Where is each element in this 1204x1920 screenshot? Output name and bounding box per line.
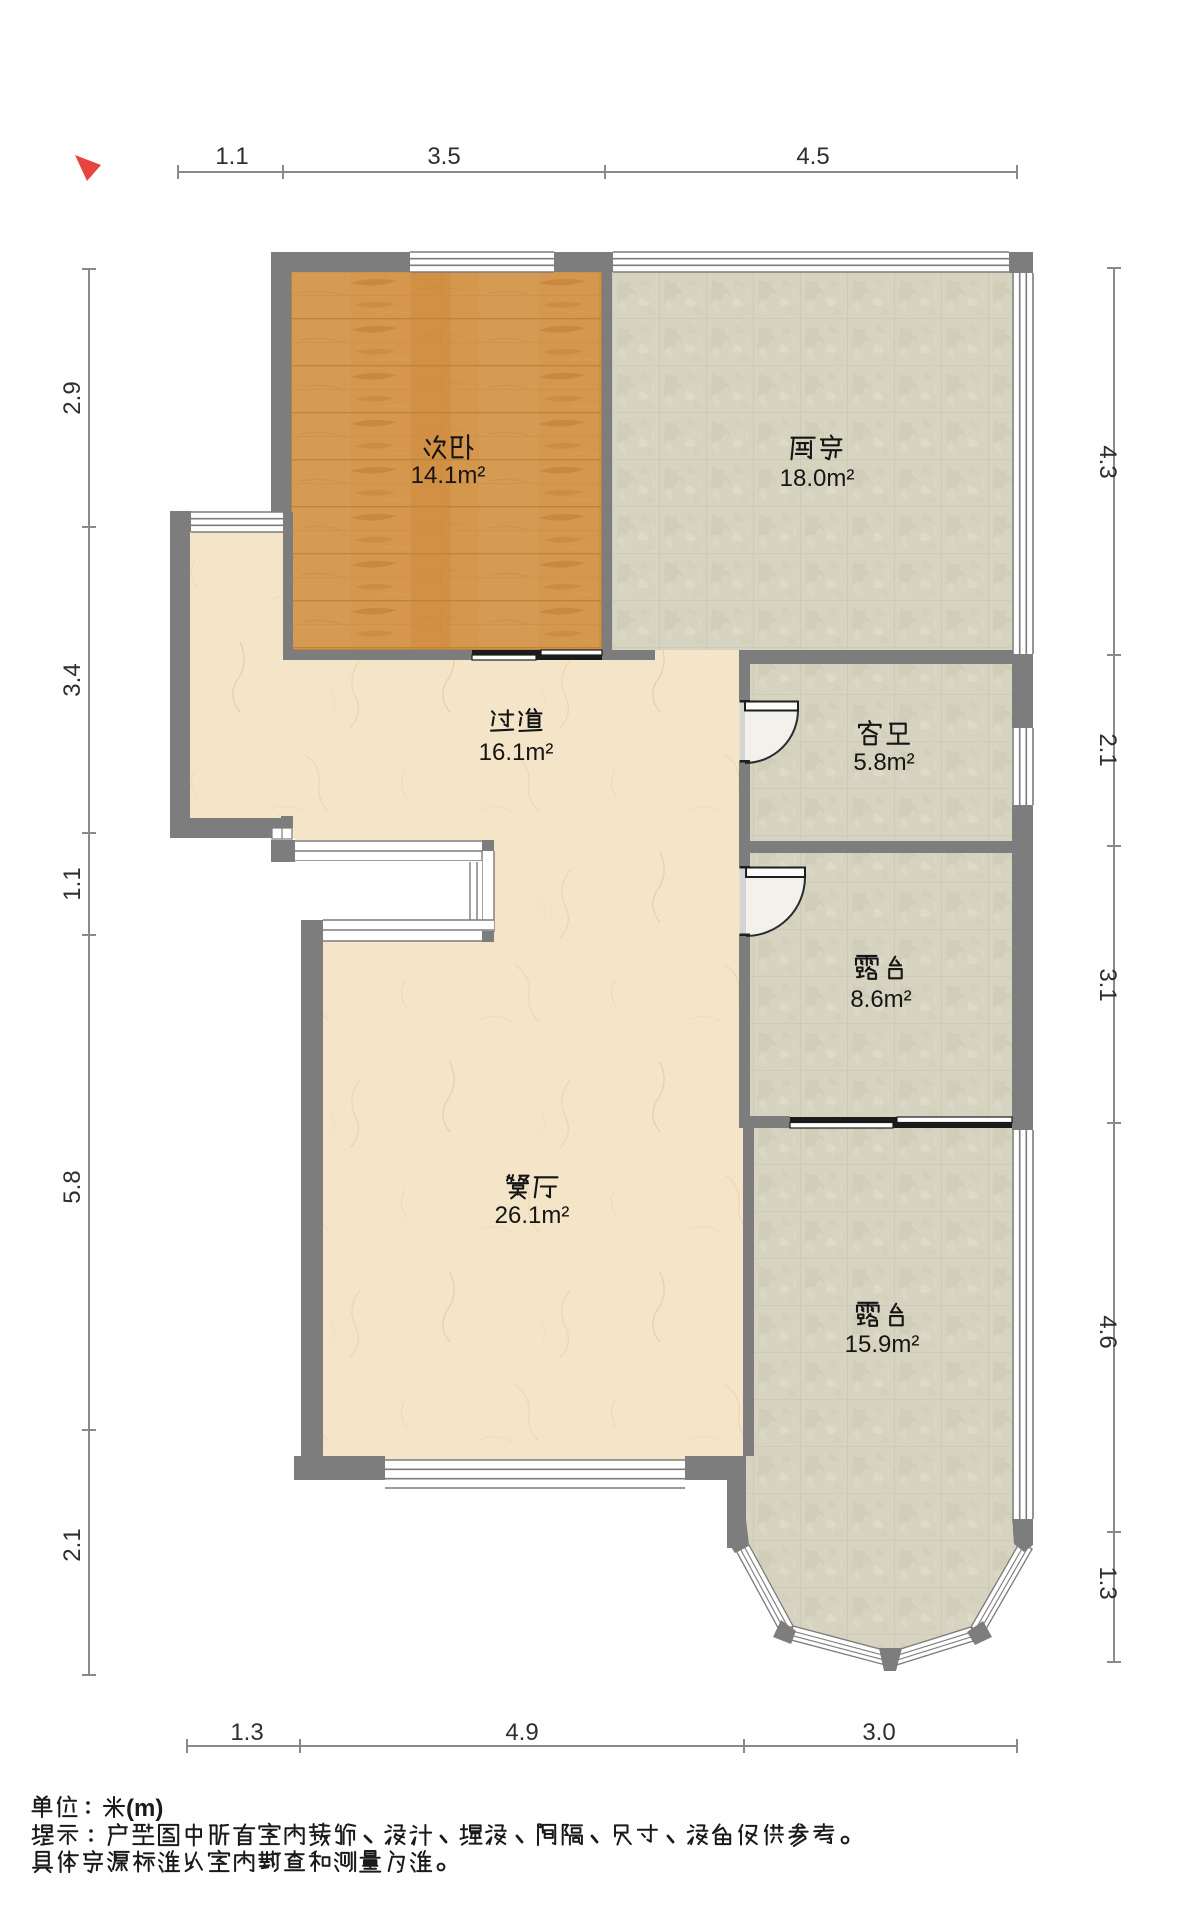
svg-text:(m): (m) [126,1795,163,1822]
svg-text:4.5: 4.5 [796,143,829,170]
svg-text:1.3: 1.3 [230,1719,263,1746]
svg-text:8.6m²: 8.6m² [850,986,911,1013]
svg-text:1.1: 1.1 [215,143,248,170]
svg-text:26.1m²: 26.1m² [495,1202,570,1229]
svg-text:3.5: 3.5 [427,143,460,170]
svg-text:3.0: 3.0 [862,1719,895,1746]
svg-text:5.8: 5.8 [59,1170,86,1203]
svg-text:18.0m²: 18.0m² [780,465,855,492]
svg-text:4.6: 4.6 [1094,1315,1121,1348]
svg-text:2.1: 2.1 [59,1528,86,1561]
svg-text:15.9m²: 15.9m² [845,1331,920,1358]
svg-text:1.3: 1.3 [1094,1566,1121,1599]
svg-text:3.1: 3.1 [1094,968,1121,1001]
svg-text:5.8m²: 5.8m² [853,749,914,776]
svg-text:2.1: 2.1 [1094,733,1121,766]
svg-text:16.1m²: 16.1m² [479,739,554,766]
svg-text:4.3: 4.3 [1094,445,1121,478]
svg-text:14.1m²: 14.1m² [411,462,486,489]
svg-text:1.1: 1.1 [59,867,86,900]
svg-text:4.9: 4.9 [505,1719,538,1746]
svg-text:2.9: 2.9 [59,381,86,414]
svg-text:3.4: 3.4 [59,663,86,696]
